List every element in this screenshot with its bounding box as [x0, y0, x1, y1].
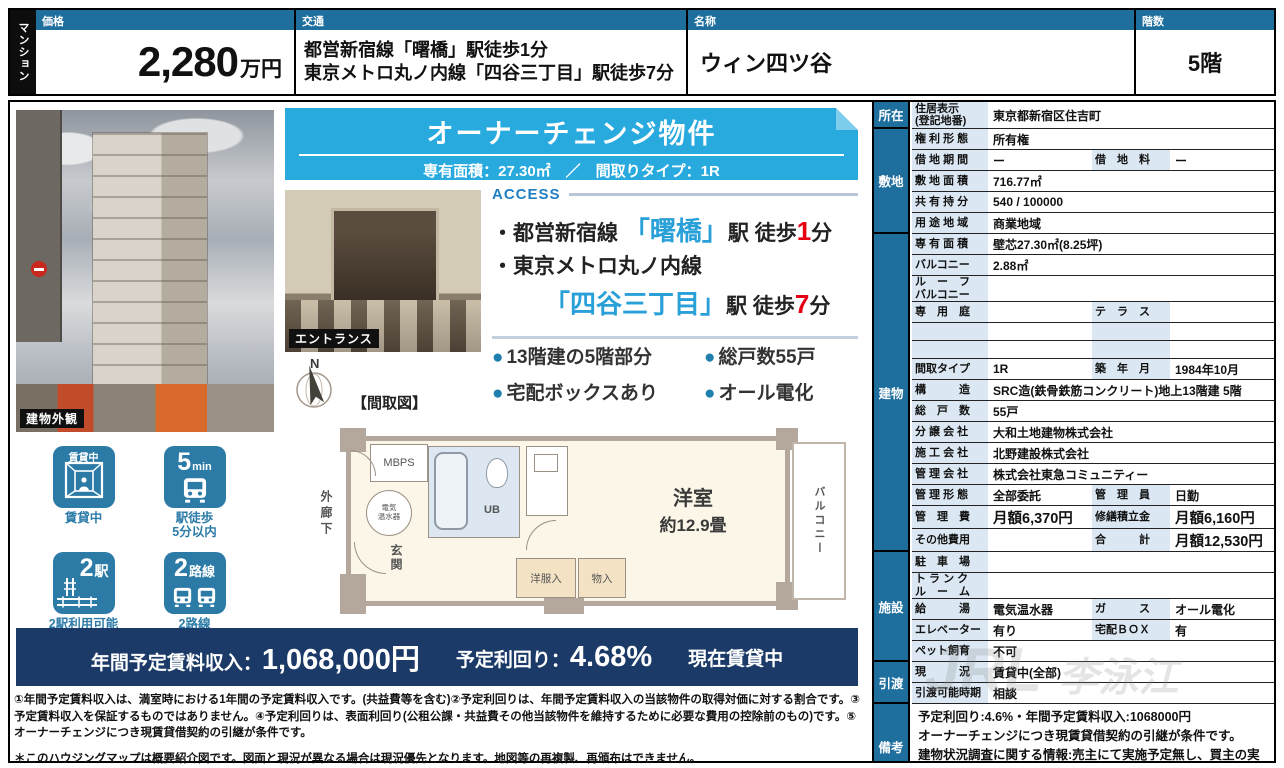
row-label: 施 工 会 社: [912, 443, 988, 463]
yield-label: 予定利回り：: [456, 645, 570, 672]
closet-clothes: 洋服入: [516, 558, 576, 598]
table-group-備考: 備考: [874, 704, 908, 763]
feature-item: オール電化: [704, 378, 862, 405]
wall-pier: [340, 574, 366, 614]
row-value: 55戸: [988, 401, 1274, 421]
price-value-row: 2,280 万円: [36, 30, 294, 94]
row-label: その他費用: [912, 529, 988, 551]
access-section: ACCESS ・都営新宿線 「曙橋」駅 徒歩1分 ・東京メトロ丸ノ内線 「四谷三…: [492, 186, 858, 339]
closet-storage: 物入: [578, 558, 626, 598]
table-row: 管 理 会 社株式会社東急コミュニティー: [912, 464, 1274, 485]
two-lines-icon: 2路線: [164, 552, 226, 614]
entrance-arch: [334, 211, 436, 315]
table-row: 予定利回り:4.6%・年間予定賃料収入:1068000円 オーナーチェンジにつき…: [912, 704, 1274, 761]
badge-unit: 路線: [189, 564, 215, 579]
exterior-caption: 建物外観: [20, 409, 84, 428]
row-label: 築 年 月: [1092, 359, 1170, 379]
row-value: 1984年10月: [1170, 359, 1274, 379]
entrance-label: 玄関: [388, 544, 405, 572]
table-row: 用 途 地 域商業地域: [912, 213, 1274, 234]
transport-label: 交通: [296, 10, 686, 30]
banner-subtitle: 専有面積：27.30㎡ ／ 間取りタイプ：1R: [299, 154, 844, 181]
feature-item: 13階建の5階部分: [492, 342, 704, 369]
yield-value: 4.68%: [570, 641, 652, 674]
price-column: 価格 2,280 万円: [36, 10, 294, 94]
row-value: 1R: [988, 359, 1092, 379]
row-label: 敷 地 面 積: [912, 171, 988, 191]
main-room-label: 洋室 約12.9畳: [618, 482, 768, 536]
access-divider: [492, 336, 858, 339]
row-value: [988, 573, 1274, 598]
access-line-prefix: ・都営新宿線: [492, 222, 624, 245]
badge-rented: 賃貸中 賃貸中: [36, 446, 131, 540]
badge-number: 2: [174, 554, 188, 582]
transport-lines: 都営新宿線「曙橋」駅徒歩1分 東京メトロ丸ノ内線「四谷三丁目」駅徒歩7分: [296, 30, 686, 94]
row-label: 分 譲 会 社: [912, 422, 988, 442]
row-value: 2.88㎡: [988, 255, 1274, 275]
table-row: 施 工 会 社北野建設株式会社: [912, 443, 1274, 464]
row-label: 管 理 員: [1092, 485, 1170, 505]
row-value: 電気温水器: [988, 599, 1092, 619]
row-label: 修繕積立金: [1092, 506, 1170, 528]
door-person-icon: [62, 461, 106, 501]
balcony-label: バルコニー: [811, 486, 827, 556]
row-value: 月額12,530円: [1170, 529, 1274, 551]
wall-pier: [340, 428, 366, 452]
row-label: 合 計: [1092, 529, 1170, 551]
transport-line-2: 東京メトロ丸ノ内線「四谷三丁目」駅徒歩7分: [304, 62, 674, 85]
price-label: 価格: [36, 10, 294, 30]
five-min-icon: 5min: [164, 446, 226, 508]
table-row: 駐 車 場: [912, 552, 1274, 573]
station-name-akebonobashi: 「曙橋」: [624, 216, 728, 246]
row-value: 所有権: [988, 129, 1274, 149]
row-value: 有: [1170, 620, 1274, 640]
floor-value: 5階: [1136, 30, 1274, 94]
compass-n-label: N: [310, 356, 319, 371]
wall-pier: [544, 598, 584, 614]
row-label: 用 途 地 域: [912, 213, 988, 233]
owner-change-banner: オーナーチェンジ物件 専有面積：27.30㎡ ／ 間取りタイプ：1R: [285, 108, 858, 180]
railway-tracks-icon: [57, 578, 97, 610]
fine-print-paragraph-2: ＊このハウジングマップは概要紹介図です。図面と現況が異なる場合は現況優先となりま…: [14, 751, 860, 768]
transport-column: 交通 都営新宿線「曙橋」駅徒歩1分 東京メトロ丸ノ内線「四谷三丁目」駅徒歩7分: [294, 10, 686, 94]
bathtub: [434, 452, 468, 530]
row-value: [1170, 323, 1274, 340]
row-value: [988, 529, 1092, 551]
badge-unit: 駅: [95, 563, 109, 579]
property-spec-table: 所在敷地建物施設引渡備考 住居表示 (登記地番)東京都新宿区住吉町権 利 形 態…: [872, 100, 1276, 763]
table-row: 管 理 形 態全部委託管 理 員日勤: [912, 485, 1274, 506]
floor-plan: バルコニー 外廊下 MBPS 電気 温水器 UB 玄関 洋室 約12.9畳 洋服…: [288, 424, 858, 622]
floorplan-heading: 【間取図】: [352, 392, 427, 413]
row-label: 権 利 形 態: [912, 129, 988, 149]
row-label: エレベーター: [912, 620, 988, 640]
walk-minutes-1: 1: [797, 216, 811, 246]
row-label: 引渡可能時期: [912, 683, 988, 703]
building-tower: [93, 133, 207, 387]
row-value: [988, 302, 1092, 322]
row-label: 現 況: [912, 662, 988, 682]
row-label: [912, 341, 988, 358]
row-label: 駐 車 場: [912, 552, 988, 572]
access-line-suffix: 分: [811, 222, 832, 245]
row-value: 大和土地建物株式会社: [988, 422, 1274, 442]
two-stations-icon: 2駅: [53, 552, 115, 614]
room-name: 洋室: [618, 482, 768, 511]
row-value: 相談: [988, 683, 1274, 703]
table-row: エレベーター有り宅配ＢＯＸ有: [912, 620, 1274, 641]
row-label: 構 造: [912, 380, 988, 400]
table-group-引渡: 引渡: [874, 662, 908, 704]
row-value: ー: [1170, 150, 1274, 170]
table-row: ト ラ ン ク ル ー ム: [912, 573, 1274, 599]
compass-icon: N: [290, 356, 338, 414]
row-value: [1170, 302, 1274, 322]
row-value: 全部委託: [988, 485, 1092, 505]
row-value: 月額6,370円: [988, 506, 1092, 528]
corridor-label: 外廊下: [318, 490, 335, 538]
floor-column: 階数 5階: [1134, 10, 1274, 94]
flyer-page: マンション 価格 2,280 万円 交通 都営新宿線「曙橋」駅徒歩1分 東京メト…: [0, 0, 1284, 768]
water-heater: 電気 温水器: [366, 490, 412, 536]
table-row: 給 湯電気温水器ガ スオール電化: [912, 599, 1274, 620]
row-value: 東京都新宿区住吉町: [988, 102, 1274, 128]
adjacent-building: [16, 110, 62, 342]
feature-list: 13階建の5階部分 総戸数55戸 宅配ボックスあり オール電化: [492, 342, 862, 405]
row-label: [1092, 323, 1170, 340]
badge-unit: min: [192, 461, 212, 473]
row-value: [988, 276, 1274, 301]
access-line-2: ・東京メトロ丸ノ内線: [492, 251, 858, 284]
banner-title: オーナーチェンジ物件: [285, 108, 858, 151]
row-value: 商業地域: [988, 213, 1274, 233]
row-label: 借 地 期 間: [912, 150, 988, 170]
fine-print-paragraph-1: ①年間予定賃料収入は、満室時における1年間の予定賃料収入です。(共益費等を含む)…: [14, 692, 860, 742]
row-label: 給 湯: [912, 599, 988, 619]
name-label: 名称: [688, 10, 1134, 30]
row-label: テ ラ ス: [1092, 302, 1170, 322]
table-group-施設: 施設: [874, 552, 908, 662]
feature-item: 宅配ボックスあり: [492, 378, 704, 405]
table-row: その他費用合 計月額12,530円: [912, 529, 1274, 552]
row-value: 北野建設株式会社: [988, 443, 1274, 463]
toilet: [486, 458, 508, 488]
entrance-photo: エントランス: [285, 190, 481, 352]
two-trains-icon: [172, 585, 218, 610]
row-value: 壁芯27.30㎡(8.25坪): [988, 234, 1274, 254]
row-value: [988, 341, 1092, 358]
row-label: ト ラ ン ク ル ー ム: [912, 573, 988, 598]
row-value: 不可: [988, 641, 1274, 661]
row-value: [988, 552, 1274, 572]
row-label: 専 有 面 積: [912, 234, 988, 254]
row-label: バルコニー: [912, 255, 988, 275]
row-value: 株式会社東急コミュニティー: [988, 464, 1274, 484]
table-row: 専 用 庭テ ラ ス: [912, 302, 1274, 323]
price-unit: 万円: [240, 41, 282, 83]
row-value: オール電化: [1170, 599, 1274, 619]
mbps-room: MBPS: [370, 444, 428, 482]
rented-icon: 賃貸中: [53, 446, 115, 508]
table-row: 引渡可能時期相談: [912, 683, 1274, 704]
table-row: 構 造SRC造(鉄骨鉄筋コンクリート)地上13階建 5階: [912, 380, 1274, 401]
building-photo: 建物外観: [16, 110, 274, 432]
entrance-caption: エントランス: [289, 329, 379, 348]
price-value: 2,280: [138, 38, 238, 86]
table-row: 管 理 費月額6,370円修繕積立金月額6,160円: [912, 506, 1274, 529]
floor-label: 階数: [1136, 10, 1274, 30]
row-label: 管 理 費: [912, 506, 988, 528]
unit-bath-label: UB: [484, 504, 500, 516]
remarks-text: 予定利回り:4.6%・年間予定賃料収入:1068000円 オーナーチェンジにつき…: [912, 704, 1274, 761]
row-value: ー: [988, 150, 1092, 170]
table-group-col: 所在敷地建物施設引渡備考: [874, 102, 910, 761]
table-group-敷地: 敷地: [874, 129, 908, 234]
feature-item: 総戸数55戸: [704, 342, 862, 369]
table-row: ル ー フ バルコニー: [912, 276, 1274, 302]
table-rows: 住居表示 (登記地番)東京都新宿区住吉町権 利 形 態所有権借 地 期 間ー借 …: [912, 102, 1274, 761]
access-line-mid: 駅 徒歩: [728, 222, 797, 245]
table-row: 分 譲 会 社大和土地建物株式会社: [912, 422, 1274, 443]
row-label: 総 戸 数: [912, 401, 988, 421]
row-value: [1170, 341, 1274, 358]
badge-5min: 5min 駅徒歩 5分以内: [147, 446, 242, 540]
row-label: 住居表示 (登記地番): [912, 102, 988, 128]
fine-print: ①年間予定賃料収入は、満室時における1年間の予定賃料収入です。(共益費等を含む)…: [14, 692, 860, 768]
row-value: SRC造(鉄骨鉄筋コンクリート)地上13階建 5階: [988, 380, 1274, 400]
row-value: 716.77㎡: [988, 171, 1274, 191]
walk-minutes-7: 7: [795, 289, 809, 319]
table-row: 専 有 面 積壁芯27.30㎡(8.25坪): [912, 234, 1274, 255]
row-label: 宅配ＢＯＸ: [1092, 620, 1170, 640]
table-row: 総 戸 数55戸: [912, 401, 1274, 422]
rental-status: 現在賃貸中: [688, 644, 783, 671]
access-line-1: ・都営新宿線 「曙橋」駅 徒歩1分: [492, 211, 858, 251]
row-value: 日勤: [1170, 485, 1274, 505]
table-group-所在: 所在: [874, 102, 908, 129]
row-value: 賃貸中(全部): [988, 662, 1274, 682]
income-value: 1,068,000円: [262, 636, 420, 678]
badge-number: 5: [177, 448, 191, 476]
row-value: 540 / 100000: [988, 192, 1274, 212]
row-label: [1092, 341, 1170, 358]
row-label: 共 有 持 分: [912, 192, 988, 212]
table-row: [912, 341, 1274, 359]
category-tag: マンション: [10, 10, 36, 94]
kitchen-sink: [534, 454, 558, 472]
access-line-3: 「四谷三丁目」駅 徒歩7分: [492, 284, 858, 324]
station-name-yotsuya3chome: 「四谷三丁目」: [544, 289, 726, 319]
transport-line-1: 都営新宿線「曙橋」駅徒歩1分: [304, 39, 548, 62]
table-row: [912, 323, 1274, 341]
access-line-mid: 駅 徒歩: [726, 295, 795, 318]
row-value: [988, 323, 1092, 340]
badge-grid: 賃貸中 賃貸中 5min: [36, 446, 242, 646]
table-row: 共 有 持 分540 / 100000: [912, 192, 1274, 213]
room-size: 約12.9畳: [618, 511, 768, 536]
table-row: 権 利 形 態所有権: [912, 129, 1274, 150]
table-row: ペット飼育不可: [912, 641, 1274, 662]
badge-caption: 駅徒歩 5分以内: [147, 511, 242, 540]
table-row: 間取タイプ1R築 年 月1984年10月: [912, 359, 1274, 380]
row-label: 管 理 形 態: [912, 485, 988, 505]
row-label: [912, 323, 988, 340]
row-label: 間取タイプ: [912, 359, 988, 379]
balcony-area: バルコニー: [792, 442, 846, 600]
table-row: 敷 地 面 積716.77㎡: [912, 171, 1274, 192]
income-bar: 年間予定賃料収入： 1,068,000円 予定利回り： 4.68% 現在賃貸中: [16, 628, 858, 686]
header-bar: マンション 価格 2,280 万円 交通 都営新宿線「曙橋」駅徒歩1分 東京メト…: [8, 8, 1276, 96]
row-label: ガ ス: [1092, 599, 1170, 619]
table-row: 現 況賃貸中(全部): [912, 662, 1274, 683]
row-label: ペット飼育: [912, 641, 988, 661]
row-value: 有り: [988, 620, 1092, 640]
table-row: バルコニー2.88㎡: [912, 255, 1274, 276]
table-row: 住居表示 (登記地番)東京都新宿区住吉町: [912, 102, 1274, 129]
income-label: 年間予定賃料収入：: [91, 648, 262, 675]
badge-caption: 賃貸中: [36, 511, 131, 525]
train-icon: [180, 477, 210, 504]
name-column: 名称 ウィン四ツ谷: [686, 10, 1134, 94]
row-label: ル ー フ バルコニー: [912, 276, 988, 301]
row-label: 専 用 庭: [912, 302, 988, 322]
table-group-建物: 建物: [874, 234, 908, 552]
table-row: 借 地 期 間ー借 地 料ー: [912, 150, 1274, 171]
row-label: 借 地 料: [1092, 150, 1170, 170]
row-value: 月額6,160円: [1170, 506, 1274, 528]
property-name: ウィン四ツ谷: [688, 30, 1134, 94]
access-heading: ACCESS: [492, 186, 858, 203]
row-label: 管 理 会 社: [912, 464, 988, 484]
access-line-suffix: 分: [809, 295, 830, 318]
